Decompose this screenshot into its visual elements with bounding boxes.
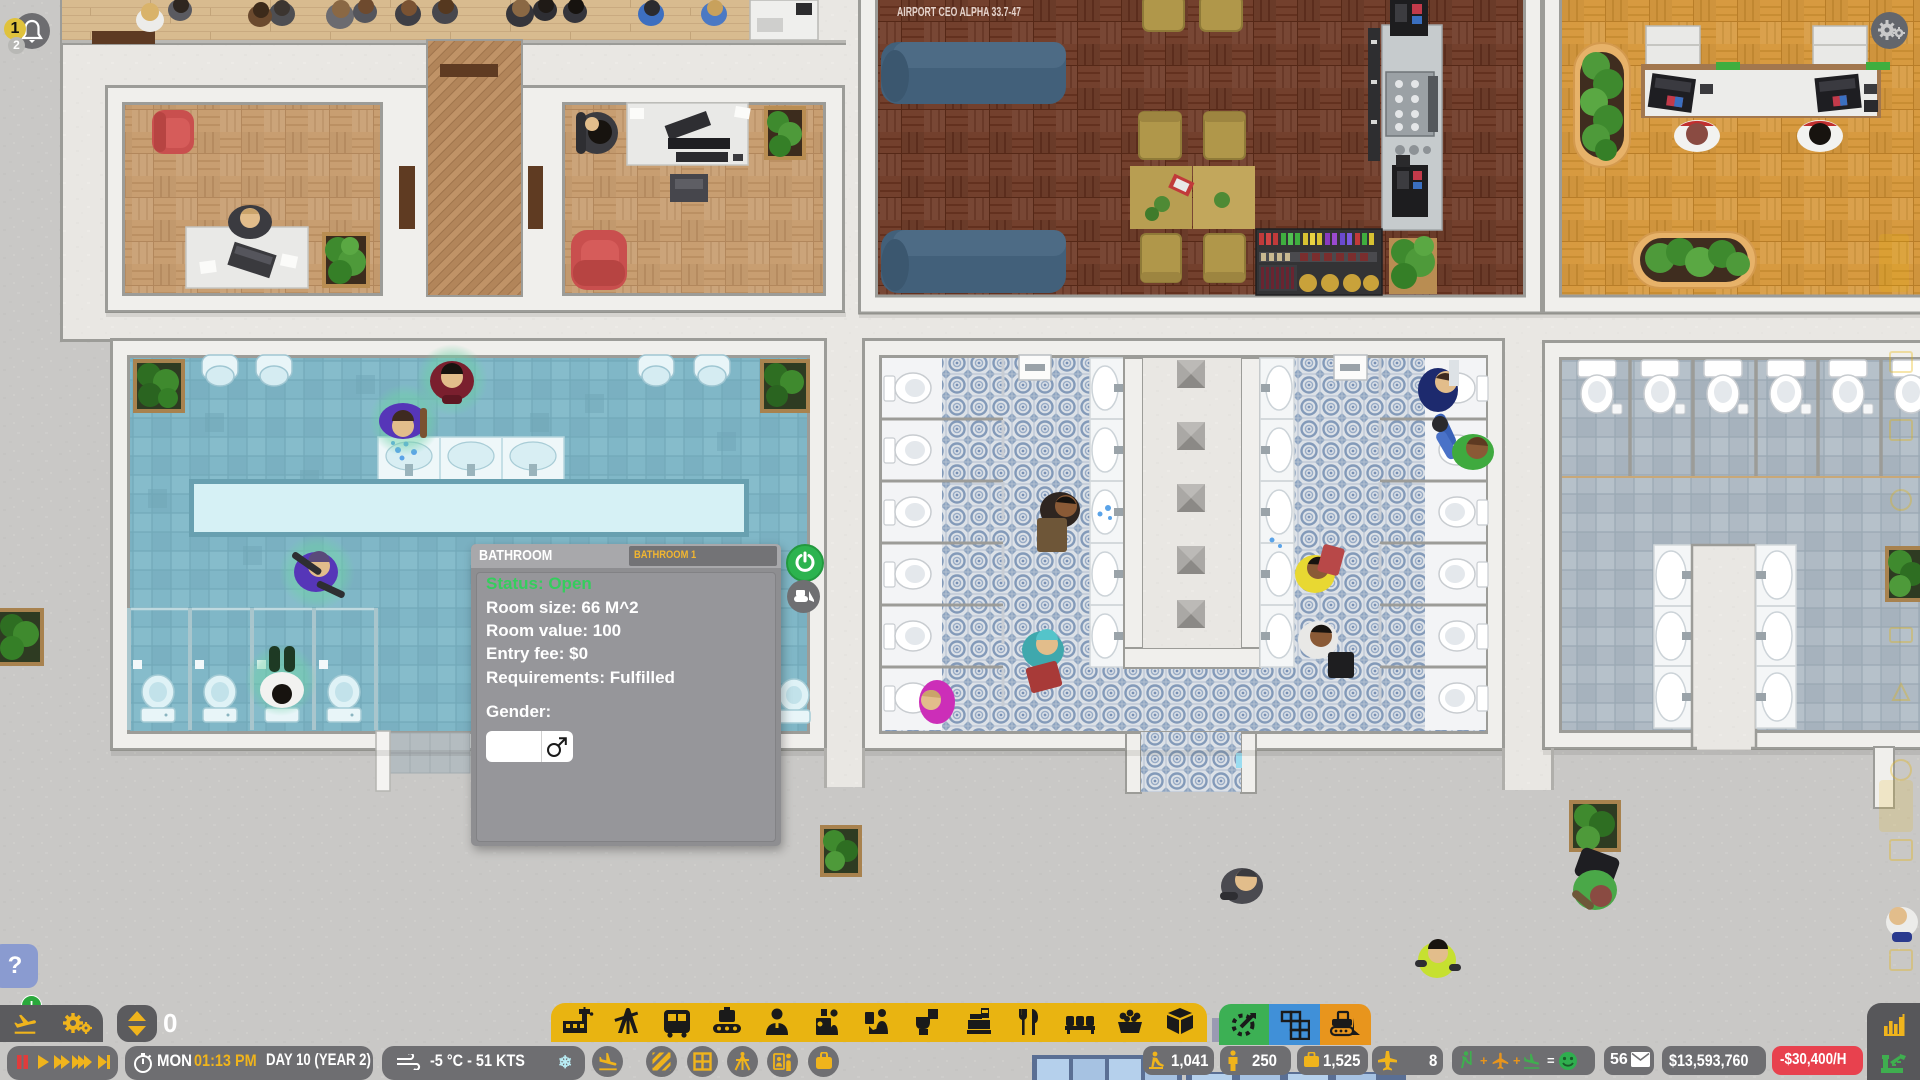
svg-text:+: + bbox=[1513, 1053, 1521, 1068]
svg-text:AIRPORT CEO ALPHA 33.7-47: AIRPORT CEO ALPHA 33.7-47 bbox=[897, 4, 1021, 19]
svg-text:+: + bbox=[1480, 1053, 1488, 1068]
svg-text:=: = bbox=[1547, 1053, 1555, 1068]
